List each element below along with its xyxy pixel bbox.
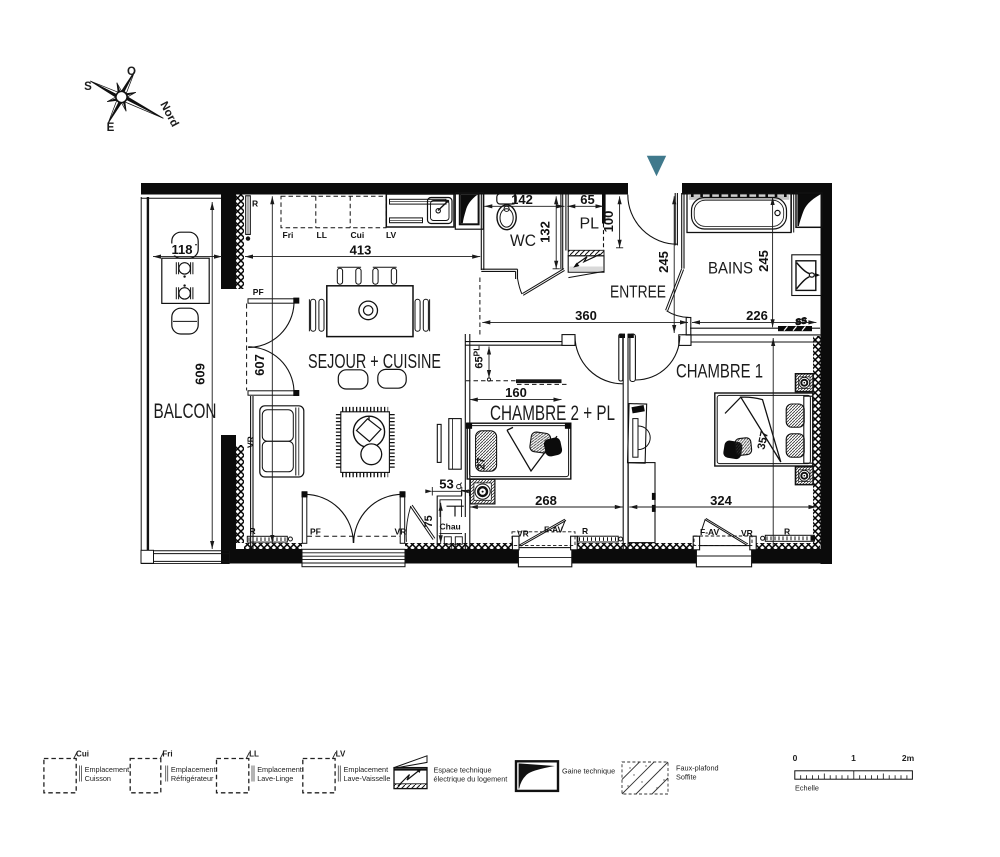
svg-text:53: 53: [439, 477, 453, 492]
svg-text:1: 1: [851, 753, 856, 763]
svg-text:607: 607: [252, 354, 267, 376]
svg-text:268: 268: [535, 493, 557, 508]
svg-text:SEJOUR + CUISINE: SEJOUR + CUISINE: [308, 351, 441, 373]
svg-text:VR: VR: [395, 527, 407, 537]
svg-text:Emplacement: Emplacement: [257, 765, 302, 774]
svg-text:R: R: [252, 199, 258, 209]
svg-text:Cui: Cui: [351, 230, 365, 240]
svg-text:132: 132: [538, 221, 553, 243]
svg-text:PF: PF: [310, 527, 321, 537]
svg-text:Emplacement: Emplacement: [171, 765, 216, 774]
svg-text:324: 324: [710, 493, 732, 508]
svg-text:160: 160: [505, 385, 527, 400]
svg-text:Cui: Cui: [76, 749, 89, 758]
svg-text:Soffite: Soffite: [676, 772, 697, 781]
svg-text:BALCON: BALCON: [154, 400, 217, 423]
svg-text:Gaine technique: Gaine technique: [562, 767, 615, 776]
svg-text:LV: LV: [386, 230, 397, 240]
svg-text:609: 609: [193, 363, 208, 385]
svg-text:Nord: Nord: [157, 100, 180, 129]
svg-text:118: 118: [172, 242, 193, 257]
svg-text:électrique du logement: électrique du logement: [434, 774, 508, 783]
svg-text:245: 245: [756, 250, 771, 272]
svg-text:100: 100: [601, 211, 616, 233]
svg-text:R: R: [250, 526, 256, 536]
svg-text:LL: LL: [317, 230, 327, 240]
svg-text:226: 226: [746, 308, 768, 323]
svg-text:Cuisson: Cuisson: [85, 774, 111, 783]
svg-text:E: E: [107, 122, 115, 134]
svg-text:Emplacement: Emplacement: [344, 765, 389, 774]
svg-text:Lave-Linge: Lave-Linge: [257, 774, 293, 783]
svg-text:Espace technique: Espace technique: [434, 765, 492, 774]
svg-text:142: 142: [511, 192, 533, 207]
svg-text:Fri: Fri: [162, 749, 172, 758]
svg-text:Lave-Vaisselle: Lave-Vaisselle: [344, 774, 391, 783]
svg-text:PL: PL: [580, 216, 600, 233]
svg-text:413: 413: [350, 243, 372, 258]
svg-text:VR: VR: [517, 529, 529, 539]
svg-text:75: 75: [423, 515, 435, 527]
svg-text:Réfrigérateur: Réfrigérateur: [171, 774, 214, 783]
svg-text:BAINS: BAINS: [708, 259, 753, 278]
svg-text:O: O: [127, 66, 136, 78]
svg-text:357: 357: [756, 430, 772, 450]
svg-text:ENTREE: ENTREE: [610, 282, 666, 302]
svg-text:Emplacement: Emplacement: [85, 765, 130, 774]
svg-text:LL: LL: [249, 749, 259, 758]
svg-text:F-AV: F-AV: [544, 525, 564, 535]
svg-text:PF: PF: [253, 287, 264, 297]
svg-text:27: 27: [475, 457, 487, 469]
svg-text:2m: 2m: [902, 753, 915, 763]
svg-text:CHAMBRE 1: CHAMBRE 1: [676, 361, 763, 383]
svg-text:S: S: [84, 81, 92, 93]
svg-text:65: 65: [474, 356, 486, 368]
svg-text:VR: VR: [741, 528, 753, 538]
svg-text:WC: WC: [510, 232, 536, 250]
svg-text:VR: VR: [246, 436, 256, 448]
svg-text:Fri: Fri: [283, 230, 294, 240]
svg-text:R: R: [582, 526, 588, 536]
svg-text:Faux-plafond: Faux-plafond: [676, 763, 719, 772]
svg-text:SS: SS: [795, 315, 808, 327]
svg-text:PL: PL: [472, 346, 482, 357]
svg-text:LV: LV: [336, 749, 346, 758]
svg-text:65: 65: [580, 192, 594, 207]
svg-text:360: 360: [575, 308, 597, 323]
svg-text:CHAMBRE 2 + PL: CHAMBRE 2 + PL: [490, 402, 615, 425]
svg-text:Echelle: Echelle: [795, 784, 819, 793]
svg-text:R: R: [784, 527, 790, 537]
svg-text:0: 0: [793, 753, 798, 763]
svg-text:245: 245: [656, 251, 671, 273]
svg-text:F-AV: F-AV: [700, 527, 720, 537]
svg-text:Chau: Chau: [440, 522, 461, 532]
